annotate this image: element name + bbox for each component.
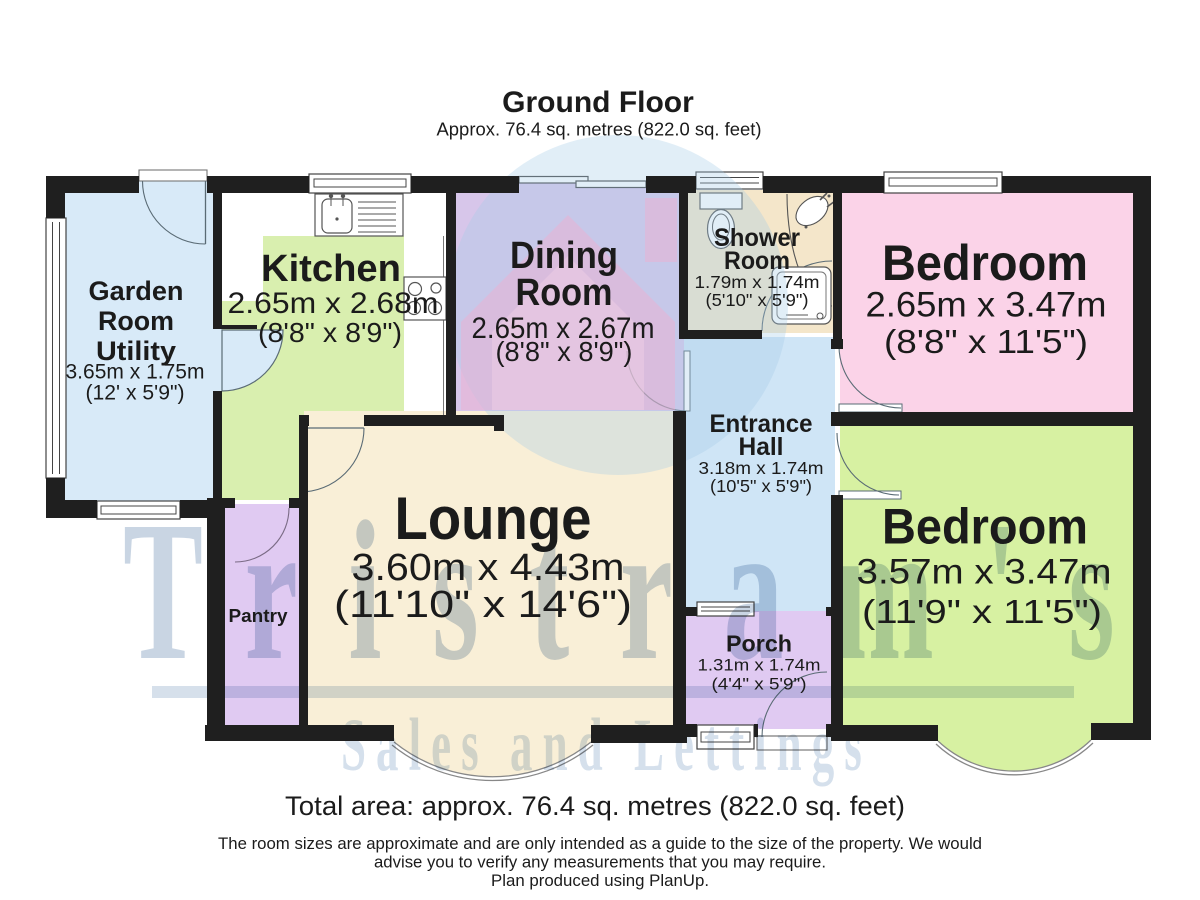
svg-text:(11'10" x 14'6"): (11'10" x 14'6") <box>334 584 632 626</box>
svg-text:2.65m x 2.68m: 2.65m x 2.68m <box>228 287 439 320</box>
svg-text:1.79m x 1.74m: 1.79m x 1.74m <box>695 272 820 292</box>
svg-text:Kitchen: Kitchen <box>261 248 401 290</box>
svg-text:3.65m x 1.75m: 3.65m x 1.75m <box>66 361 205 384</box>
svg-text:Pantry: Pantry <box>229 606 288 626</box>
svg-text:(5'10" x 5'9"): (5'10" x 5'9") <box>706 290 809 310</box>
svg-text:(10'5" x 5'9"): (10'5" x 5'9") <box>710 476 812 496</box>
svg-text:1.31m x 1.74m: 1.31m x 1.74m <box>698 656 821 675</box>
svg-text:2.65m x 3.47m: 2.65m x 3.47m <box>866 286 1107 325</box>
svg-text:(8'8" x 8'9"): (8'8" x 8'9") <box>496 336 633 367</box>
svg-text:(4'4" x 5'9"): (4'4" x 5'9") <box>712 675 807 694</box>
svg-text:Lounge: Lounge <box>395 485 592 552</box>
svg-text:Plan produced using PlanUp.: Plan produced using PlanUp. <box>491 872 709 890</box>
svg-text:Porch: Porch <box>726 631 792 657</box>
svg-text:Room: Room <box>516 272 613 314</box>
svg-text:advise you to verify any measu: advise you to verify any measurements th… <box>374 854 826 872</box>
svg-text:Total area: approx. 76.4 sq. m: Total area: approx. 76.4 sq. metres (822… <box>285 791 905 821</box>
svg-text:Room: Room <box>724 247 790 275</box>
svg-text:Ground Floor: Ground Floor <box>502 86 694 119</box>
svg-text:3.57m x 3.47m: 3.57m x 3.47m <box>857 553 1112 592</box>
svg-text:(12' x 5'9"): (12' x 5'9") <box>86 382 185 405</box>
svg-text:Garden: Garden <box>89 276 184 306</box>
svg-text:Approx. 76.4 sq. metres (822.0: Approx. 76.4 sq. metres (822.0 sq. feet) <box>437 120 762 140</box>
svg-text:3.18m x 1.74m: 3.18m x 1.74m <box>699 458 824 478</box>
svg-text:Room: Room <box>98 306 174 336</box>
svg-text:Hall: Hall <box>739 433 784 461</box>
svg-text:(8'8" x 11'5"): (8'8" x 11'5") <box>884 323 1088 360</box>
svg-text:(8'8" x 8'9"): (8'8" x 8'9") <box>258 317 402 348</box>
svg-text:3.60m x 4.43m: 3.60m x 4.43m <box>352 547 625 589</box>
svg-text:Sales and Lettings: Sales and Lettings <box>341 705 862 787</box>
svg-text:Bedroom: Bedroom <box>882 235 1088 291</box>
svg-text:Dining: Dining <box>510 235 618 277</box>
svg-text:(11'9" x 11'5"): (11'9" x 11'5") <box>862 593 1102 630</box>
svg-text:Bedroom: Bedroom <box>882 499 1088 555</box>
svg-text:The room sizes are approximate: The room sizes are approximate and are o… <box>218 835 982 853</box>
